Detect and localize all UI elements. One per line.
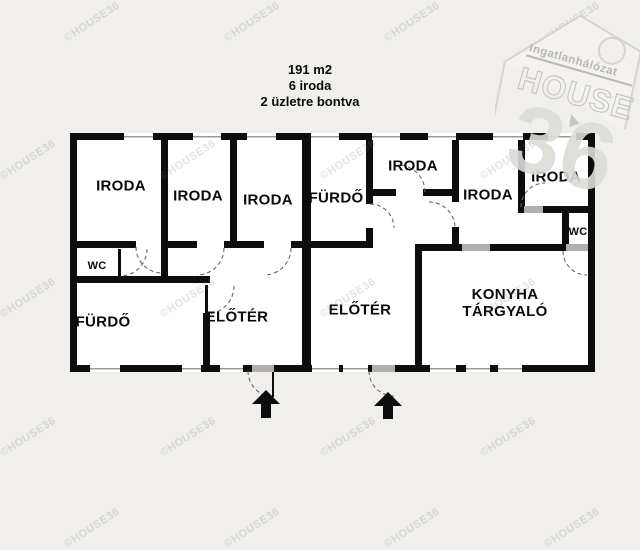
room-label-iroda-2: IRODA (173, 188, 223, 205)
room-label-konyha-line2: TÁRGYALÓ (462, 303, 547, 320)
house36-logo: Ingatlanhálózat HOUSE 36 (495, 0, 640, 190)
room-label-iroda-4: IRODA (388, 158, 438, 175)
room-label-furdo-2: FÜRDŐ (76, 314, 131, 331)
room-label-konyha-targyalo: KONYHA TÁRGYALÓ (462, 286, 547, 320)
entrance-arrow-icon (252, 390, 280, 418)
room-label-iroda-1: IRODA (96, 178, 146, 195)
room-label-eloter-1: ELŐTÉR (206, 309, 269, 326)
floorplan-canvas: 191 m2 6 iroda 2 üzletre bontva (0, 0, 640, 541)
room-label-furdo-1: FÜRDŐ (309, 190, 364, 207)
logo-tag-edge-icon (495, 62, 511, 131)
entrance-arrow-icon (374, 392, 402, 419)
entrance-arrows (252, 390, 402, 419)
room-label-wc-1: WC (569, 226, 588, 238)
room-label-iroda-3: IRODA (243, 192, 293, 209)
room-label-wc-2: WC (88, 260, 107, 272)
room-label-konyha-line1: KONYHA (462, 286, 547, 303)
room-label-eloter-2: ELŐTÉR (329, 302, 392, 319)
